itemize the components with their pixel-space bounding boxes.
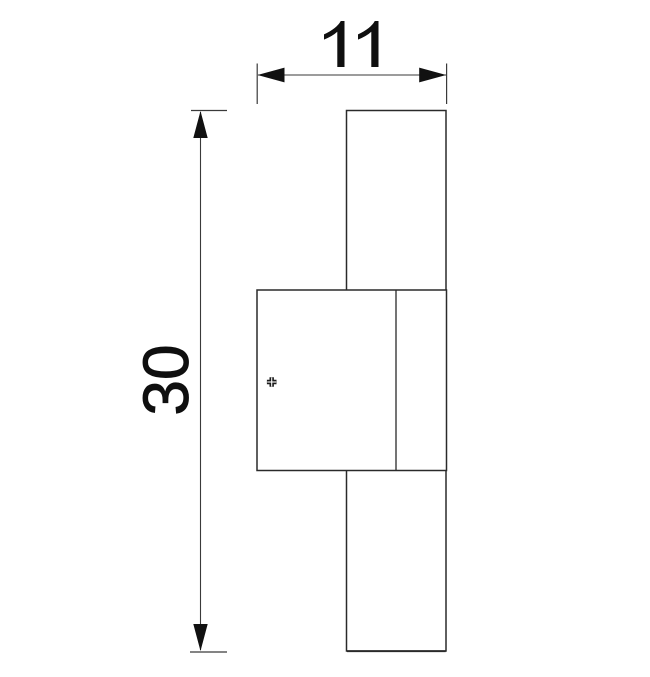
svg-text:30: 30 <box>130 344 202 415</box>
